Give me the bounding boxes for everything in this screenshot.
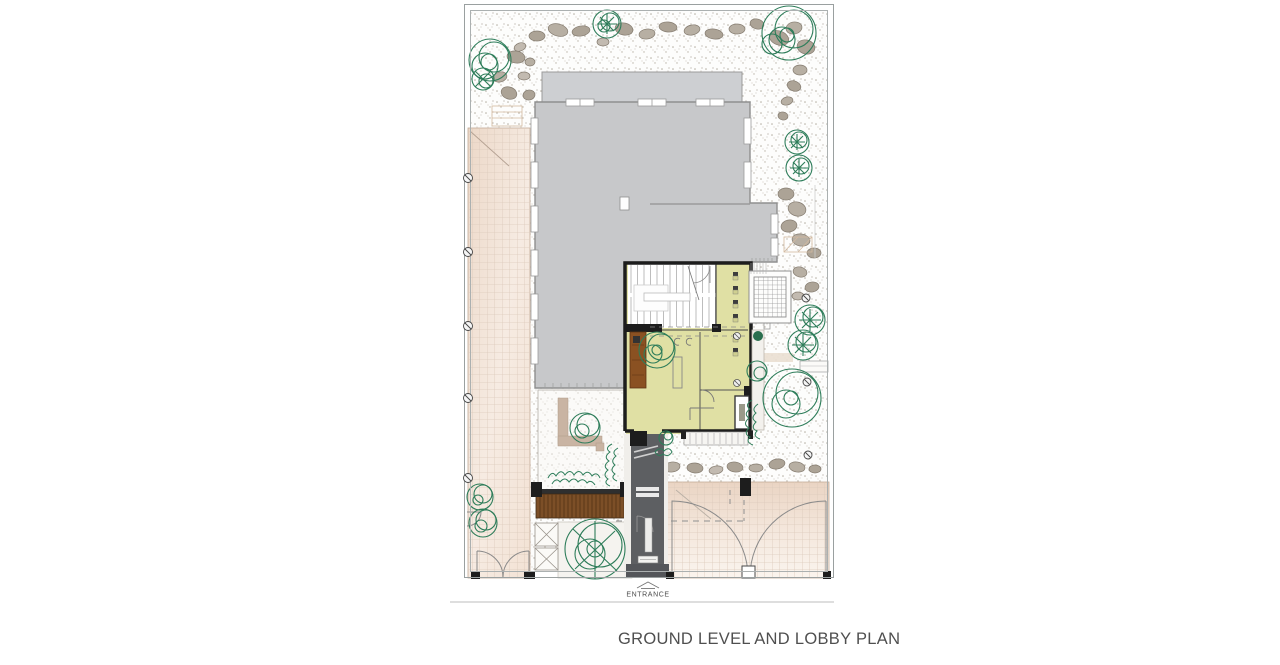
plan-caption: GROUND LEVEL AND LOBBY PLAN: [618, 630, 878, 649]
lobby: [624, 263, 753, 445]
annotations: ENTRANCE: [450, 582, 834, 602]
floor-plan-drawing: ENTRANCE: [0, 0, 1280, 665]
step: [636, 487, 659, 491]
roof-hatch: [620, 197, 629, 210]
tree: [593, 10, 621, 38]
bush: [753, 331, 763, 341]
entrance-label: ENTRANCE: [626, 592, 669, 599]
tree: [788, 330, 818, 360]
column: [531, 482, 542, 497]
bench: [800, 361, 828, 372]
gate-column: [740, 478, 751, 496]
page: ENTRANCE GROUND LEVEL AND LOBBY PLAN: [0, 0, 1280, 665]
trellis-pergola: [749, 263, 791, 329]
entrance-arrow-icon: [637, 582, 659, 588]
upper-roof-block: [542, 72, 742, 102]
garden-court: [538, 390, 638, 490]
step: [636, 493, 659, 497]
entrance-walkway: [624, 431, 669, 578]
garden-deck-area: [531, 482, 635, 578]
